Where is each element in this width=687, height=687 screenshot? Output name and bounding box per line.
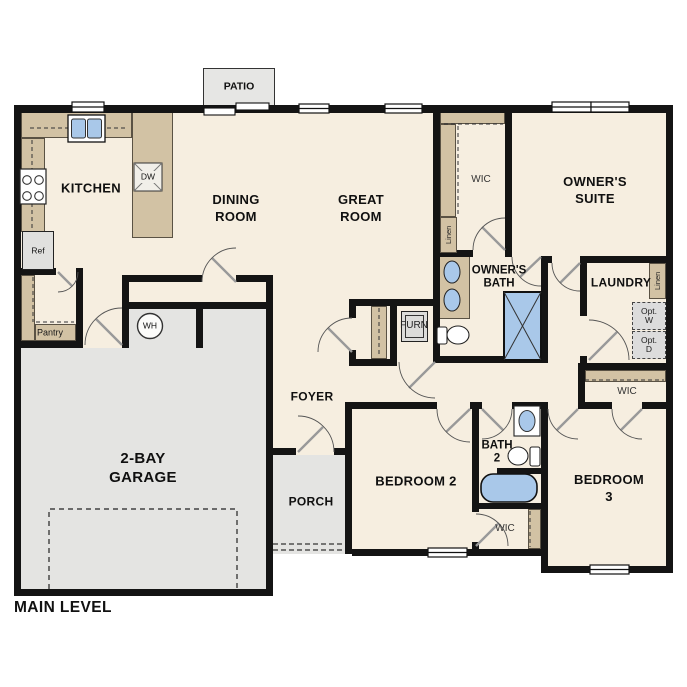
optional-washer: Opt. W [632,302,666,330]
great-room-label: GREAT ROOM [338,191,384,225]
garage-label: 2-BAY GARAGE [109,449,177,487]
bedroom3-label: BEDROOM 3 [570,471,648,505]
bath2-label: BATH 2 [481,440,512,465]
shower-icon [504,292,541,360]
bathtub-icon [481,474,537,502]
stove-icon [20,169,46,204]
dishwasher-label: DW [141,172,155,183]
furnace-label: FURN [400,320,428,333]
plan-title: MAIN LEVEL [14,599,112,617]
foyer-label: FOYER [291,390,334,405]
porch-label: PORCH [289,495,334,510]
refrigerator-label: Ref [31,246,44,257]
wic-bed3-label: WIC [617,386,636,399]
owners-suite-label: OWNER'S SUITE [563,173,627,207]
garage-door-outline [49,509,237,589]
bedroom2-label: BEDROOM 2 [375,473,456,490]
patio-slider-door [204,103,269,115]
bath2-sink-icon [514,406,540,436]
linen-closet-wic: Linen [440,217,457,253]
pantry-label: Pantry [37,327,63,338]
kitchen-label: KITCHEN [61,180,121,197]
porch-edge-dashes [273,544,345,550]
dining-room-label: DINING ROOM [212,191,259,225]
door-swings [58,218,642,546]
owners-bath-sinks-icon [444,261,460,311]
floor-plan: Opt. W Opt. D Linen Linen PATIO KITCHEN … [0,0,687,687]
water-heater-label: WH [143,321,157,332]
fixtures-overlay [0,0,687,687]
wic-bed2-label: WIC [495,523,514,536]
bath2-toilet-icon [508,447,540,466]
optional-dryer: Opt. D [632,331,666,359]
door-arcs [58,218,642,546]
linen-closet-laundry: Linen [649,263,666,299]
patio-label: PATIO [224,80,255,93]
laundry-label: LAUNDRY [591,276,651,291]
kitchen-sink-icon [68,115,105,142]
owners-bath-label: OWNER'S BATH [472,265,527,290]
owners-wic-label: WIC [471,174,490,187]
owners-toilet-icon [437,326,469,344]
